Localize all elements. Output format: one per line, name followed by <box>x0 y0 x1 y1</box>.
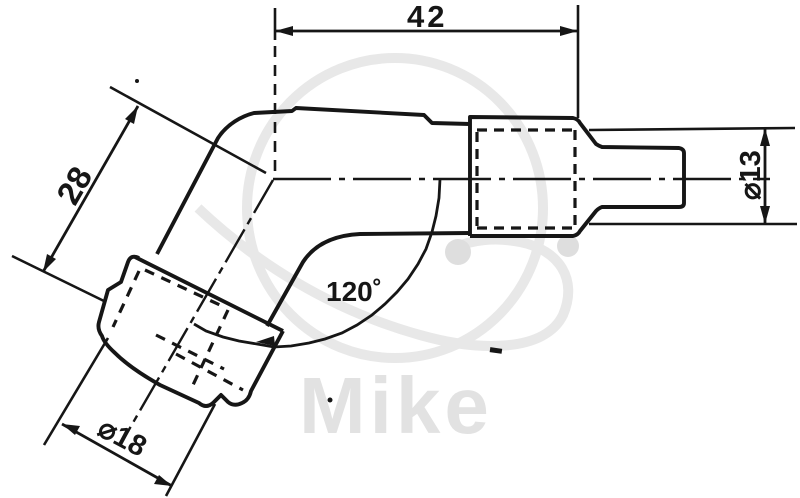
svg-text:42: 42 <box>407 0 447 34</box>
svg-text:Mike: Mike <box>299 361 493 450</box>
svg-text:⌀13: ⌀13 <box>735 150 767 200</box>
svg-text:⌀18: ⌀18 <box>93 412 152 464</box>
svg-text:28: 28 <box>49 160 99 210</box>
svg-text:120˚: 120˚ <box>326 276 382 307</box>
